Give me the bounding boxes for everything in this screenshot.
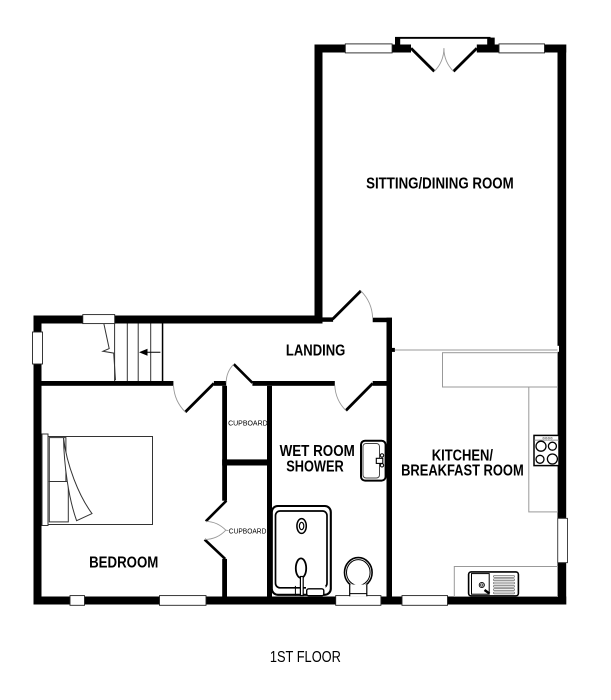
svg-text:CUPBOARD: CUPBOARD bbox=[228, 421, 268, 428]
svg-text:CUPBOARD: CUPBOARD bbox=[229, 529, 267, 536]
svg-text:BREAKFAST ROOM: BREAKFAST ROOM bbox=[401, 463, 524, 480]
svg-text:BEDROOM: BEDROOM bbox=[89, 554, 158, 571]
svg-text:WET ROOM: WET ROOM bbox=[280, 443, 355, 460]
svg-text:1ST FLOOR: 1ST FLOOR bbox=[270, 649, 341, 666]
svg-text:LANDING: LANDING bbox=[286, 342, 346, 359]
svg-text:SITTING/DINING ROOM: SITTING/DINING ROOM bbox=[366, 176, 514, 193]
svg-text:SHOWER: SHOWER bbox=[286, 458, 344, 475]
